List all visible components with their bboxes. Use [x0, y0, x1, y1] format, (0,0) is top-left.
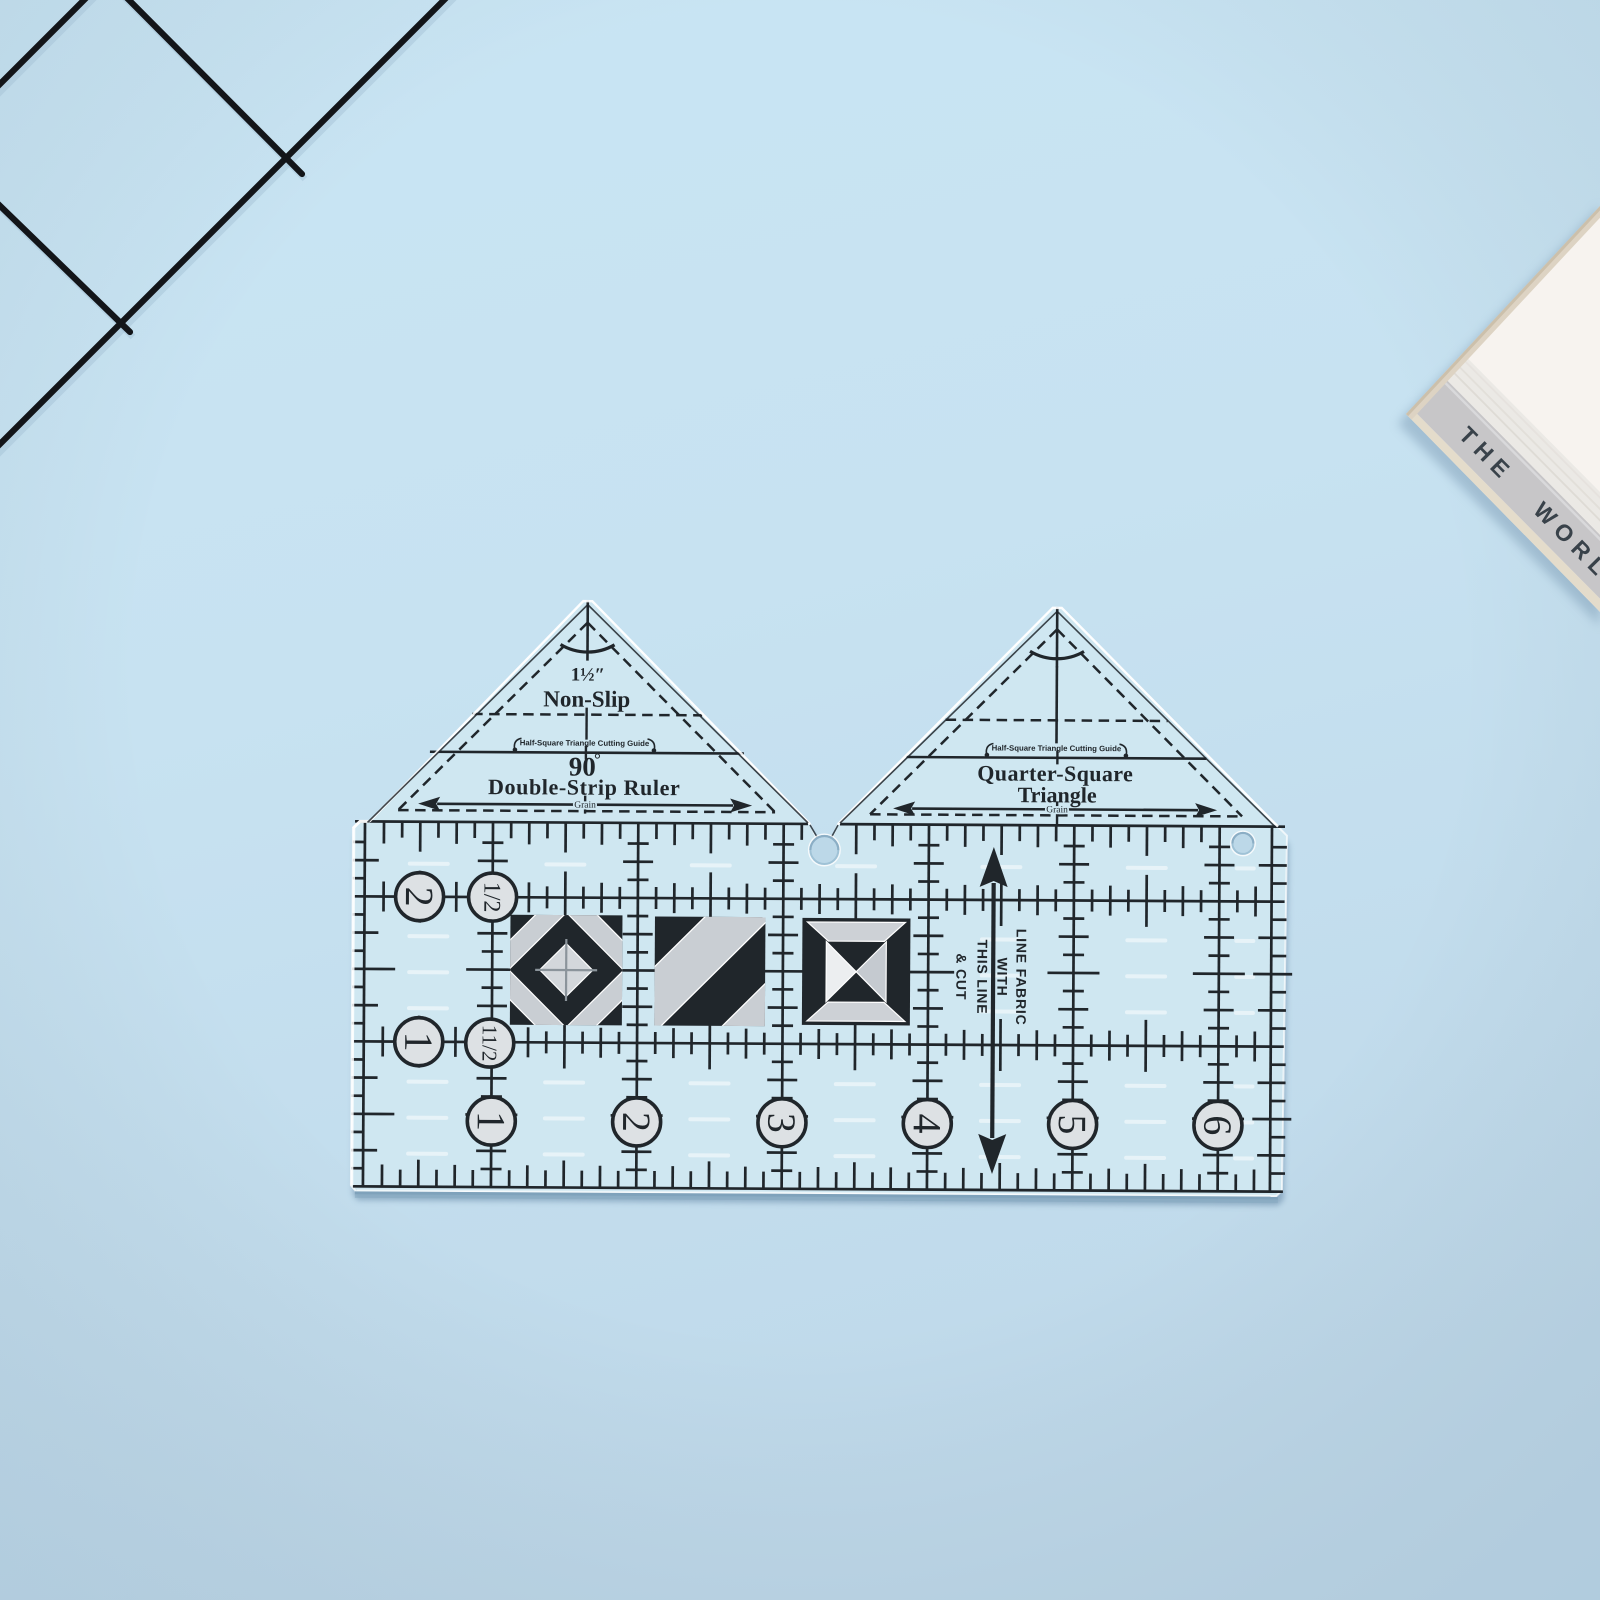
svg-text:WITH: WITH	[994, 958, 1010, 997]
svg-text:6: 6	[1195, 1115, 1240, 1135]
svg-text:2: 2	[397, 887, 442, 907]
svg-text:Double-Strip Ruler: Double-Strip Ruler	[488, 774, 680, 800]
svg-text:THIS LINE: THIS LINE	[974, 939, 990, 1014]
svg-text:1: 1	[469, 1111, 514, 1131]
svg-text:Non-Slip: Non-Slip	[543, 686, 630, 712]
svg-text:4: 4	[905, 1113, 950, 1133]
svg-text:2: 2	[614, 1112, 659, 1132]
svg-text:& CUT: & CUT	[953, 953, 969, 1000]
svg-text:Triangle: Triangle	[1018, 782, 1097, 807]
svg-text:1: 1	[396, 1032, 441, 1052]
svg-text:Grain: Grain	[1046, 805, 1068, 815]
svg-text:LINE FABRIC: LINE FABRIC	[1013, 929, 1030, 1026]
svg-text:1½″: 1½″	[571, 665, 605, 686]
svg-text:1/2: 1/2	[478, 882, 504, 913]
svg-text:°: °	[594, 750, 601, 769]
svg-text:11/2: 11/2	[478, 1025, 502, 1062]
svg-text:Grain: Grain	[574, 801, 596, 811]
svg-text:5: 5	[1050, 1114, 1095, 1134]
svg-text:3: 3	[759, 1113, 804, 1133]
